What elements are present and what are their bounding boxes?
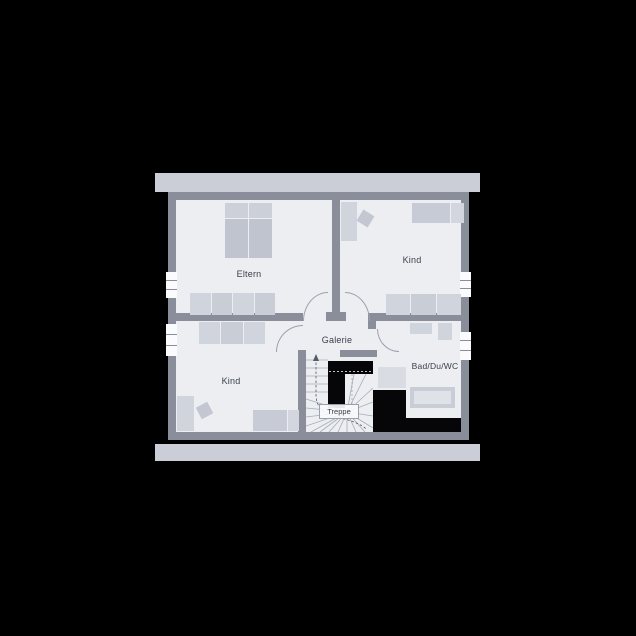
window-tick: [460, 350, 471, 351]
wardrobe-unit: [199, 322, 220, 344]
wall-divider-top-rooms: [332, 200, 340, 314]
wardrobe-kind-bottom: [199, 322, 265, 344]
desk-kind-top: [341, 202, 357, 241]
bed-kind-top: [412, 203, 464, 223]
void-black-horizontal: [373, 418, 461, 432]
wardrobe-eltern: [190, 293, 275, 315]
wall-kind-stair: [298, 350, 306, 432]
wardrobe-unit: [411, 294, 435, 315]
bed-pillow: [249, 203, 272, 218]
up-arrow-icon: [313, 354, 319, 361]
room-label-treppe: Treppe: [327, 407, 351, 416]
double-bed: [225, 203, 272, 258]
bed-kind-bottom: [253, 410, 299, 431]
roof-edge-top: [155, 173, 480, 192]
bed-mattress: [249, 219, 272, 258]
wardrobe-unit: [190, 293, 211, 315]
window-tick: [166, 289, 177, 290]
desk-kind-bottom: [177, 396, 194, 431]
washbasin: [410, 323, 432, 334]
window-tick: [460, 340, 471, 341]
floor-plan-canvas: Eltern Kind Kind Galerie Bad/Du/WC Trepp…: [0, 0, 636, 636]
bed-mattress: [412, 203, 450, 223]
wardrobe-kind-top: [386, 294, 461, 315]
window-tick: [166, 345, 177, 346]
wardrobe-unit: [255, 293, 276, 315]
roof-edge-bottom: [155, 444, 480, 461]
bed-pillow: [451, 203, 464, 223]
room-label-eltern: Eltern: [237, 269, 262, 279]
room-label-bad: Bad/Du/WC: [412, 361, 459, 371]
winder-staircase: [306, 352, 373, 432]
window-tick: [166, 280, 177, 281]
room-label-galerie: Galerie: [322, 335, 352, 345]
wall-stub-foot: [326, 312, 346, 321]
room-label-kind-top: Kind: [403, 255, 422, 265]
window-tick: [460, 280, 471, 281]
wardrobe-unit: [221, 322, 242, 344]
bed-pillow: [288, 410, 299, 431]
window-tick: [166, 334, 177, 335]
window-kind-bottom: [166, 324, 177, 356]
bathtub: [410, 387, 455, 408]
wardrobe-unit: [212, 293, 233, 315]
window-bad: [460, 332, 471, 360]
bed-mattress: [225, 219, 248, 258]
window-kind-top: [460, 272, 471, 297]
wardrobe-unit: [437, 294, 461, 315]
window-eltern: [166, 272, 177, 298]
shower: [378, 367, 406, 388]
window-tick: [460, 288, 471, 289]
bathtub-inner: [414, 391, 451, 404]
bed-pillow: [225, 203, 248, 218]
wc: [438, 323, 452, 340]
bed-mattress: [253, 410, 287, 431]
wardrobe-unit: [233, 293, 254, 315]
room-label-kind-bottom: Kind: [222, 376, 241, 386]
room-label-treppe-box: Treppe: [319, 404, 359, 419]
wardrobe-unit: [386, 294, 410, 315]
wardrobe-unit: [244, 322, 265, 344]
